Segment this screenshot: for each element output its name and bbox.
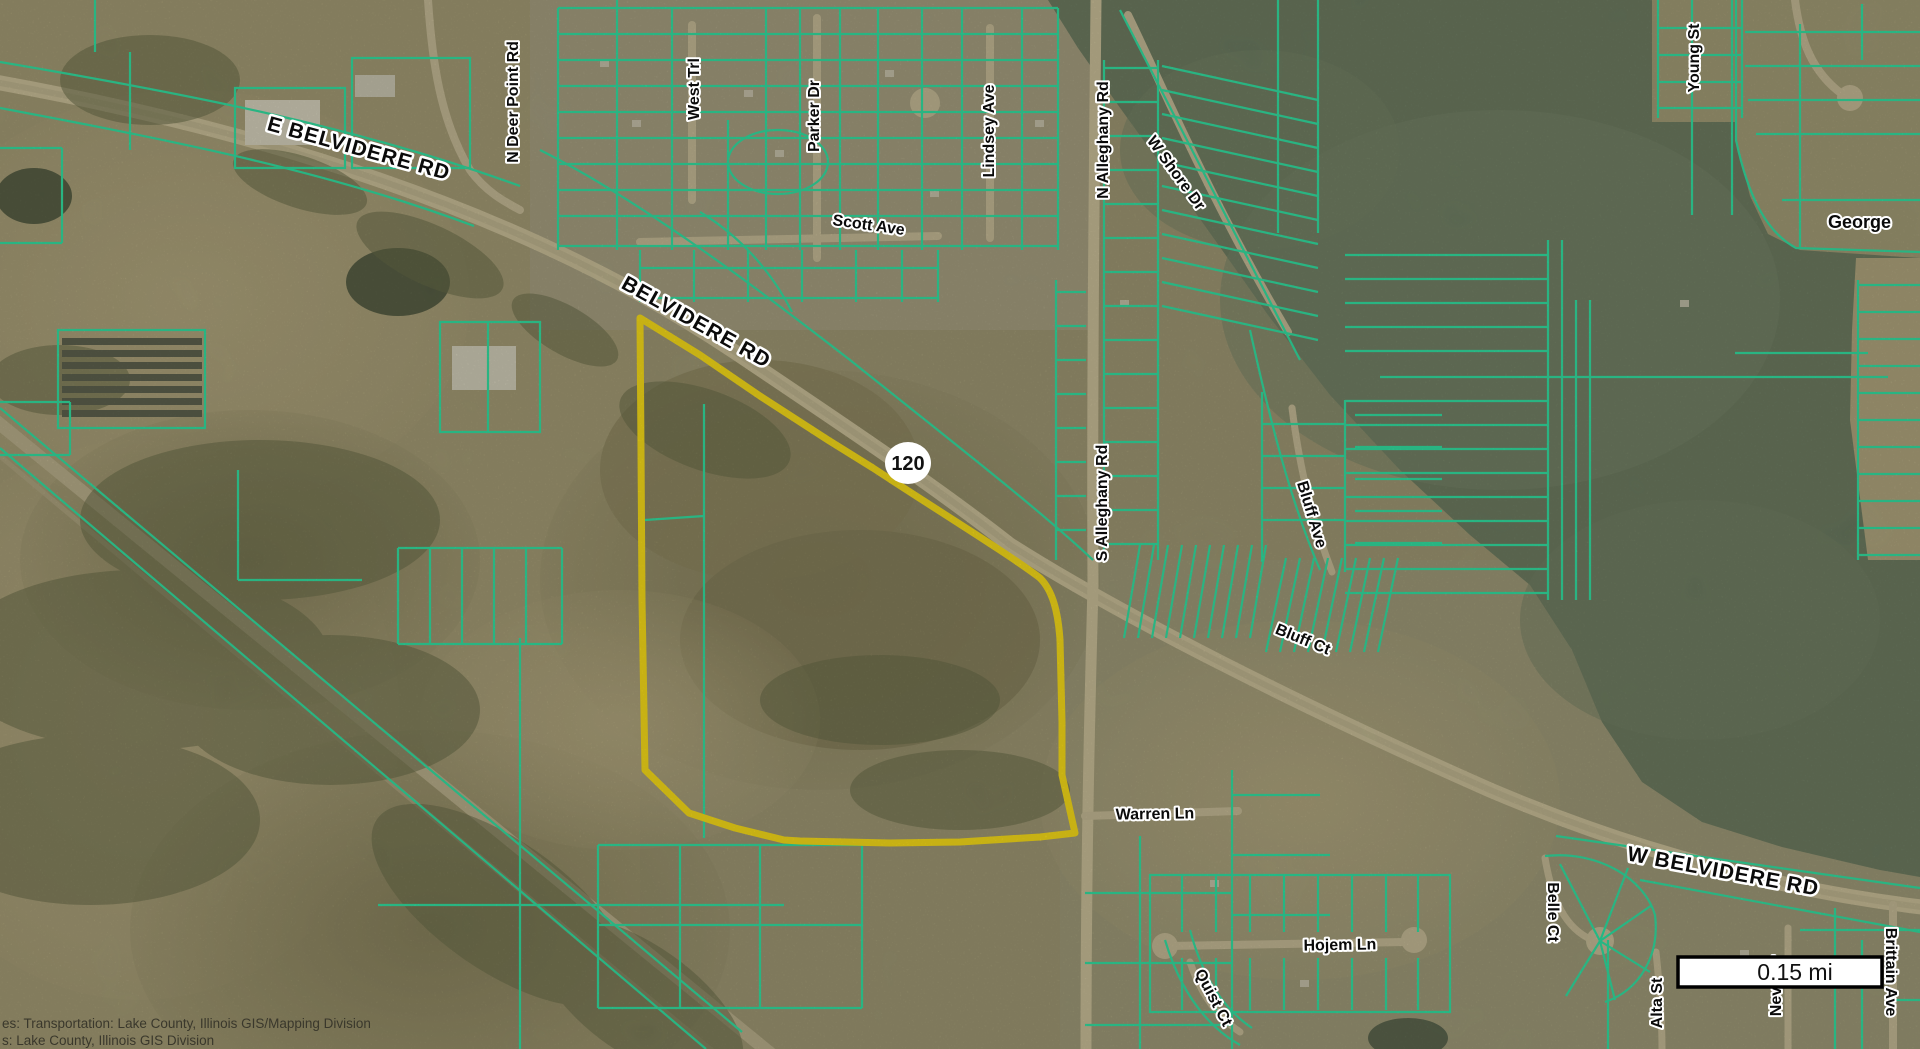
attribution-line-2: s: Lake County, Illinois GIS Division — [2, 1033, 214, 1048]
street-label-hojem-ln: Hojem Ln — [1303, 936, 1376, 954]
street-label-s-alleghany-rd: S Alleghany Rd — [1094, 445, 1111, 562]
scale-bar: 0.15 mi — [1678, 957, 1882, 987]
street-label-belle-ct: Belle Ct — [1544, 882, 1561, 942]
aerial-texture-fine — [0, 0, 1920, 1049]
route-120-shield: 120 — [885, 442, 931, 484]
street-label-n-deer-point-rd: N Deer Point Rd — [505, 41, 522, 163]
map-canvas[interactable]: E BELVIDERE RD BELVIDERE RD W BELVIDERE … — [0, 0, 1920, 1049]
street-label-alta-st: Alta St — [1649, 977, 1666, 1028]
street-label-n-alleghany-rd: N Alleghany Rd — [1095, 81, 1112, 199]
street-label-brittain-ave: Brittain Ave — [1882, 928, 1899, 1017]
street-label-lindsey-ave: Lindsey Ave — [981, 84, 998, 177]
street-label-george: George — [1828, 212, 1891, 232]
street-label-young-st: Young St — [1686, 23, 1703, 93]
route-120-text: 120 — [891, 453, 924, 475]
attribution-line-1: es: Transportation: Lake County, Illinoi… — [2, 1016, 371, 1031]
scale-bar-text: 0.15 mi — [1757, 959, 1832, 985]
street-label-parker-dr: Parker Dr — [806, 80, 823, 152]
street-label-west-trl: West Trl — [686, 58, 703, 120]
street-label-warren-ln: Warren Ln — [1116, 805, 1195, 823]
